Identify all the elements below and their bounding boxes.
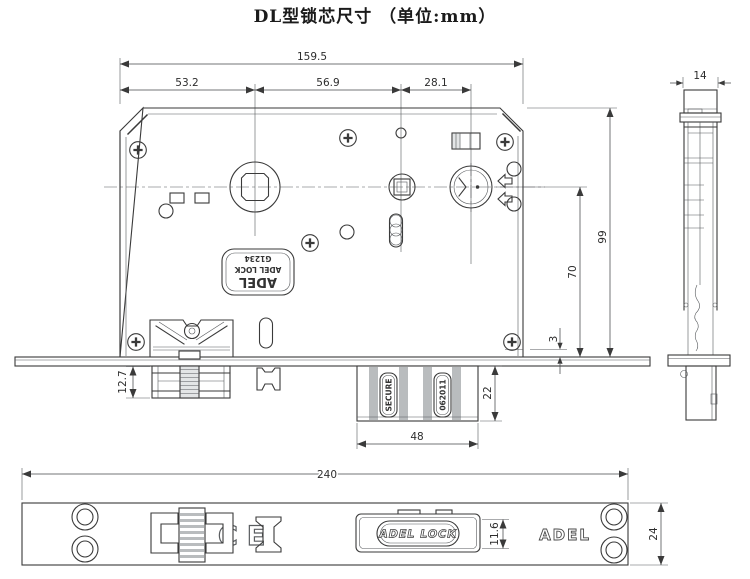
svg-text:24: 24 (648, 527, 660, 541)
svg-text:48: 48 (410, 431, 423, 443)
small-holes (159, 128, 521, 348)
svg-text:99: 99 (597, 230, 609, 243)
latch-tab (179, 351, 200, 359)
deadbolt-badge: ADEL LOCK (378, 528, 457, 541)
svg-text:11.6: 11.6 (489, 522, 501, 546)
lock-dimension-drawing: DL型锁芯尺寸 （单位:mm） 159.5 53.2 56.9 28.1 (0, 0, 750, 579)
side-deadbolt (681, 366, 718, 420)
dim-faceplate-offset: 3 (530, 328, 567, 374)
screw-icon (340, 130, 357, 147)
faceplate-plate (22, 503, 628, 565)
dim-right-segment: 28.1 (424, 77, 447, 89)
deadbolt-stamp-right: 062011 (434, 373, 451, 417)
dim-cylinder-to-faceplate: 70 (496, 187, 587, 357)
stamp-name: ADEL LOCK (233, 265, 281, 274)
svg-text:70: 70 (567, 265, 579, 278)
screw-icon (130, 142, 147, 159)
screw-icon (128, 334, 145, 351)
dim-faceplate-length: 240 (22, 468, 628, 500)
side-profile (668, 90, 730, 420)
dim-deadbolt-height: 22 (480, 366, 502, 421)
dim-faceplate-width: 24 (630, 503, 668, 565)
faceplate-bar (15, 351, 650, 366)
front-view: 159.5 53.2 56.9 28.1 (15, 51, 650, 449)
arrow-left-icon (498, 175, 512, 188)
technical-drawing-page: DL型锁芯尺寸 （单位:mm） 159.5 53.2 56.9 28.1 (0, 0, 750, 579)
svg-text:22: 22 (482, 386, 494, 399)
dim-thickness: 14 (670, 70, 731, 88)
chamfer-right (503, 114, 520, 131)
spool-guide (257, 368, 280, 390)
dim-latch-depth: 12.7 (117, 367, 150, 399)
chamfer-left (128, 115, 147, 134)
dim-segment-row: 53.2 56.9 28.1 (120, 77, 471, 96)
screw-icon (497, 134, 514, 151)
feature-axis-lines (104, 96, 545, 264)
svg-text:12.7: 12.7 (117, 370, 129, 393)
dim-left-segment: 53.2 (175, 77, 198, 89)
side-faceplate (668, 355, 730, 366)
deadbolt-front: ADEL LOCK (356, 510, 480, 552)
dim-height-overall: 99 (527, 108, 617, 357)
body-stamp: ADEL ADEL LOCK G1234 (222, 249, 294, 295)
svg-text:240: 240 (317, 469, 337, 481)
stamp-model: G1234 (244, 254, 271, 263)
latch-bolt (152, 366, 230, 398)
svg-text:SECURE: SECURE (385, 378, 394, 411)
stamp-brand: ADEL (239, 274, 277, 289)
brand-text: ADEL (539, 526, 591, 544)
dim-middle-segment: 56.9 (316, 77, 339, 89)
oblong-slot (260, 318, 273, 348)
deadbolt: SECURE 062011 (357, 366, 478, 421)
faceplate-view: 240 CE (22, 468, 668, 565)
svg-text:3: 3 (548, 336, 560, 343)
svg-text:14: 14 (693, 70, 707, 82)
spring-slot (390, 214, 403, 247)
svg-text:159.5: 159.5 (297, 51, 327, 63)
stop-block (452, 133, 480, 149)
deadbolt-stamp-left: SECURE (380, 373, 397, 417)
drawing-title: DL型锁芯尺寸 （单位:mm） (254, 6, 497, 27)
svg-text:062011: 062011 (439, 379, 448, 410)
screw-icon (302, 235, 319, 252)
dim-deadbolt-width: 48 (357, 423, 478, 449)
side-view: 14 (668, 70, 731, 420)
